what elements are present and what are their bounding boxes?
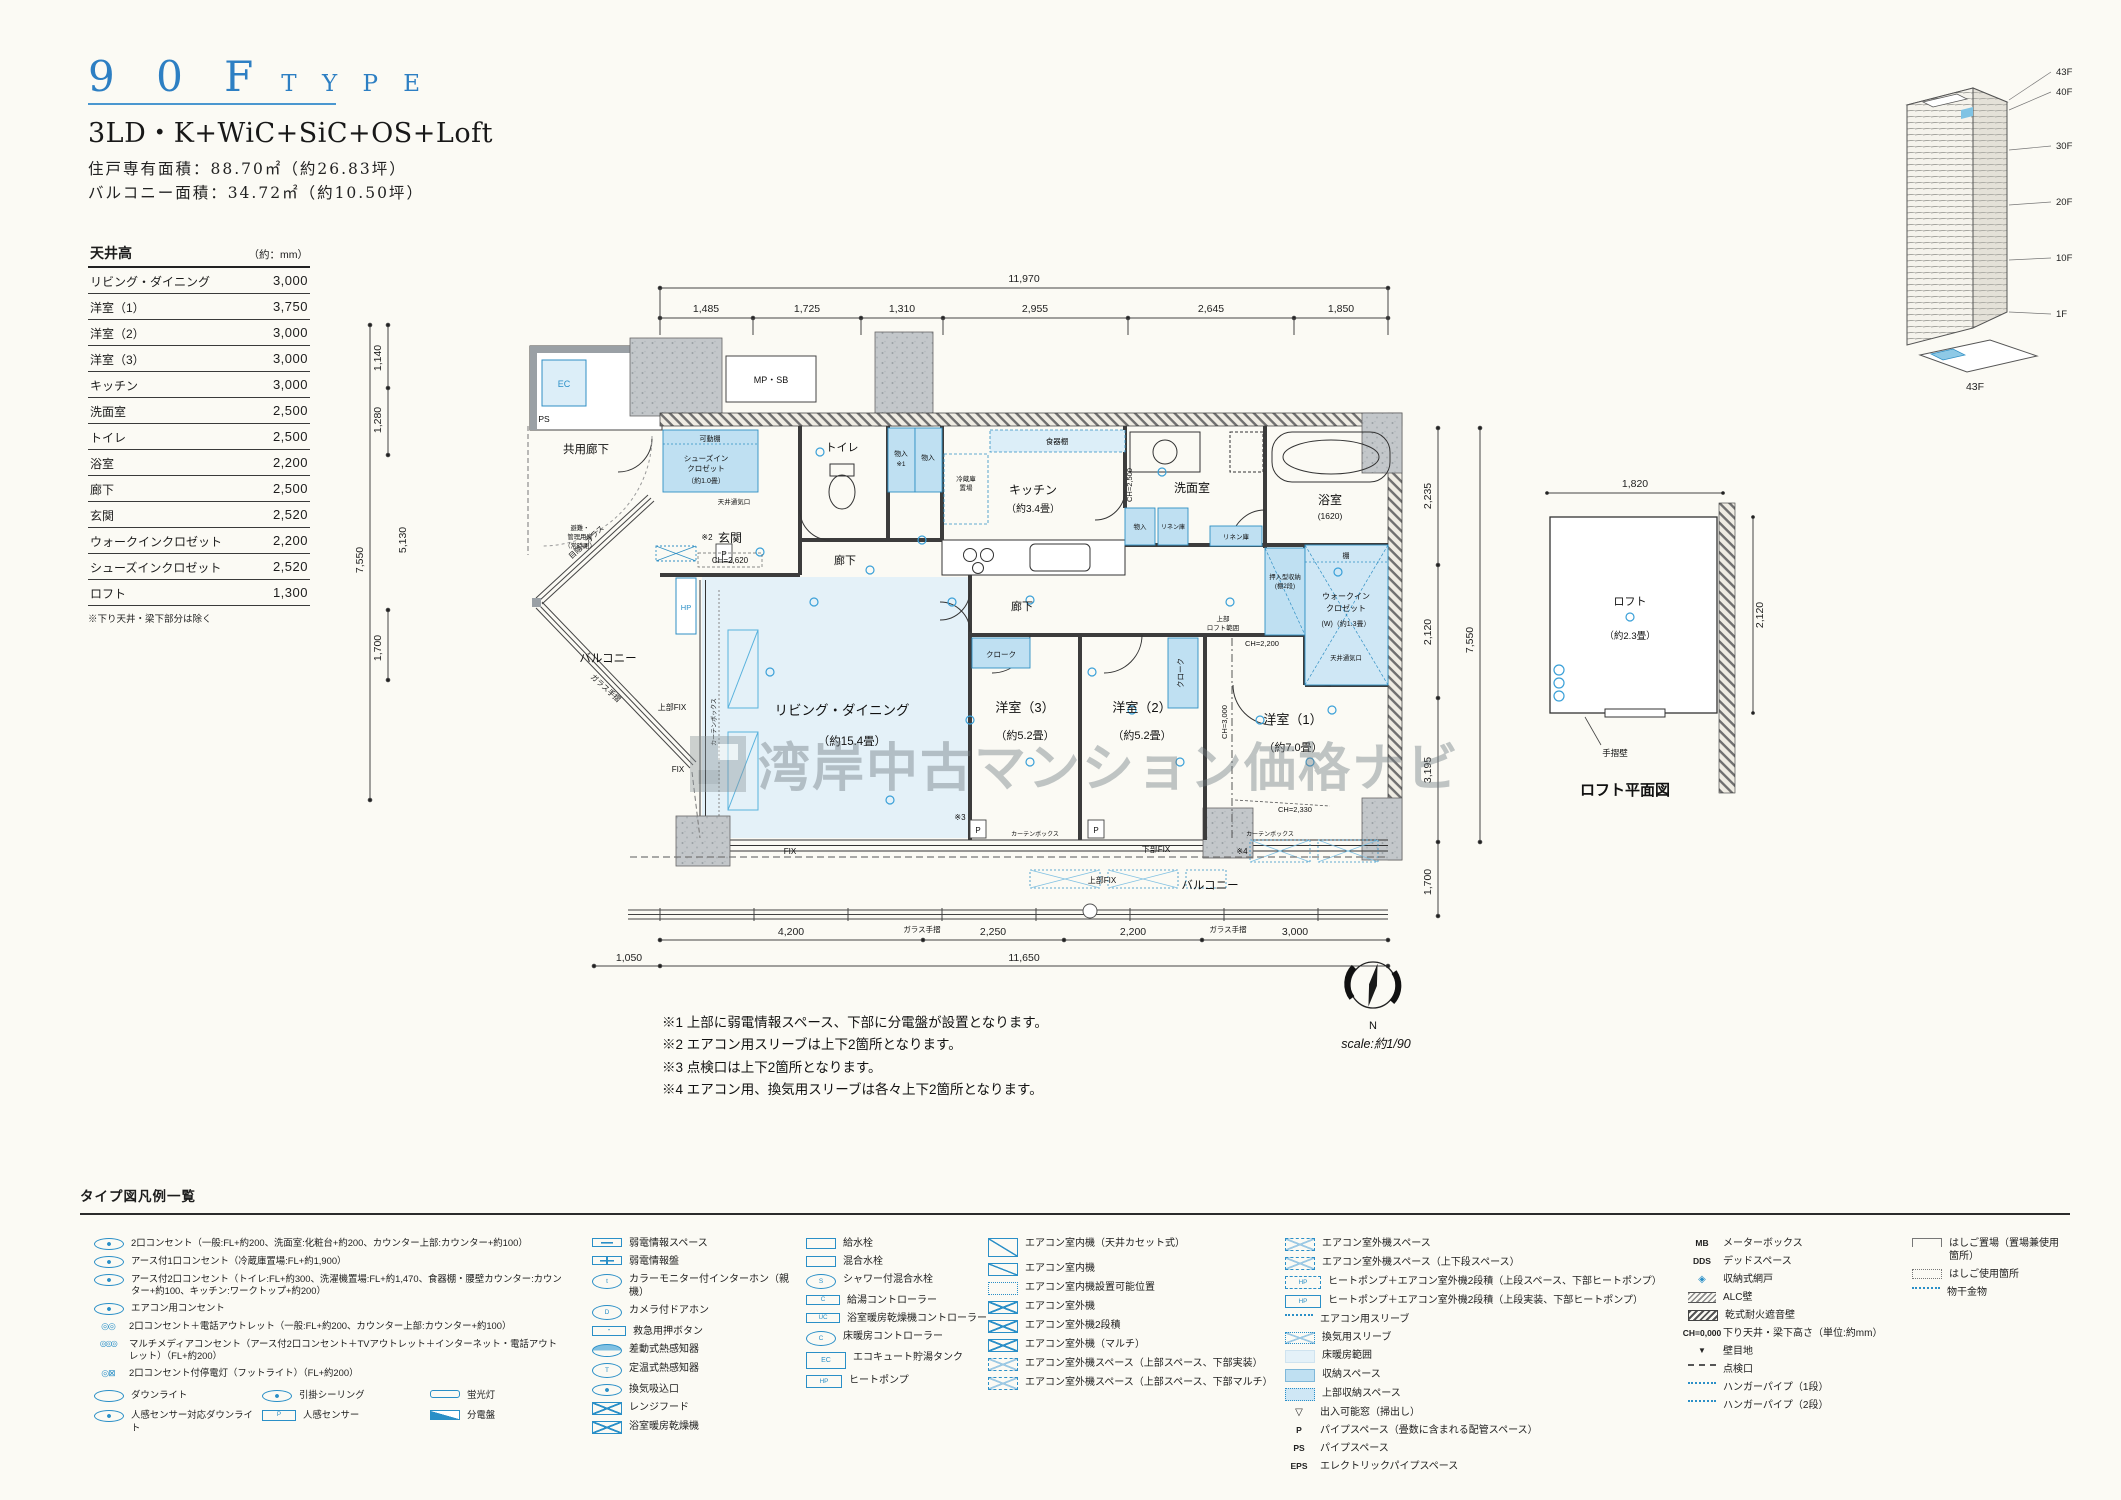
legend-icon: EC — [806, 1352, 846, 1369]
room-height: 3,000 — [273, 325, 308, 342]
label-balcony-bottom: バルコニー — [1181, 879, 1238, 892]
ceiling-row: キッチン 3,000 — [88, 372, 310, 398]
legend-item: 収納スペース — [1285, 1368, 1675, 1382]
building-tower: 43F 40F 30F 20F 10F 1F 43F — [1875, 50, 2121, 395]
label-wic2: クロゼット — [1326, 603, 1366, 613]
label-ps: PS — [538, 414, 550, 424]
label-entrance: 玄関 — [718, 530, 742, 545]
label-ceiling-vent2: 天井通気口 — [1330, 653, 1361, 662]
legend-item: エアコン室外機スペース（上部スペース、下部実装） — [988, 1357, 1283, 1371]
legend-label: エアコン室外機スペース（上部スペース、下部実装） — [1025, 1357, 1263, 1370]
dim-label: 7,550 — [1464, 627, 1476, 653]
legend-icon — [988, 1377, 1018, 1390]
room-height: 2,520 — [273, 559, 308, 576]
legend-label: 混合水栓 — [843, 1255, 883, 1268]
label-linen: リネン庫 — [1161, 523, 1185, 531]
legend-label: はしご置場（置場兼使用箇所） — [1949, 1237, 2062, 1263]
room-height: 2,200 — [273, 455, 308, 472]
ceiling-row: ウォークインクロゼット 2,200 — [88, 528, 310, 554]
page-title-type: T Y P E — [281, 71, 429, 97]
legend-label: 収納式網戸 — [1723, 1273, 1773, 1286]
legend-item: D カメラ付ドアホン — [592, 1304, 802, 1320]
legend-label: 下り天井・梁下高さ（単位:約mm） — [1723, 1327, 1882, 1340]
legend-label: 2口コンセント＋電話アウトレット（一般:FL+約200、カウンター上部:カウンタ… — [129, 1320, 511, 1332]
legend-item: エアコン室内機設置可能位置 — [988, 1281, 1283, 1295]
label-balcony-left: バルコニー — [579, 652, 636, 665]
header-block: 9 0 FT Y P E 3LD・K+WiC+SiC+OS+Loft 住戸専有面… — [88, 52, 493, 203]
legend-icon — [262, 1390, 292, 1402]
room-name: 洋室（3） — [90, 351, 145, 368]
ceiling-row: 浴室 2,200 — [88, 450, 310, 476]
legend-label: エアコン用コンセント — [131, 1302, 225, 1314]
label-sic: シューズイン — [684, 453, 729, 463]
ceiling-row: 洗面室 2,500 — [88, 398, 310, 424]
legend-item: HP ヒートポンプ＋エアコン室外機2段積（上段実装、下部ヒートポンプ） — [1285, 1294, 1675, 1308]
legend-icon: ◈ — [1688, 1274, 1716, 1285]
legend-icon — [1285, 1350, 1315, 1363]
legend-item: エアコン室内機 — [988, 1262, 1283, 1276]
legend-icon — [988, 1339, 1018, 1352]
label-storage: 物入 — [894, 449, 908, 458]
label-note4: ※4 — [1236, 847, 1248, 856]
room-name: トイレ — [90, 429, 126, 446]
legend-item: エアコン室外機（マルチ） — [988, 1338, 1283, 1352]
legend-label: デッドスペース — [1723, 1255, 1792, 1268]
legend-item: ALC壁 — [1688, 1291, 1903, 1304]
legend-label: レンジフード — [629, 1401, 689, 1414]
label-p: P — [721, 550, 726, 559]
loft-wall-hatch — [1719, 503, 1735, 793]
legend-item: 人感センサー対応ダウンライト — [94, 1409, 262, 1433]
label-fix: FIX — [672, 765, 685, 774]
dim-label: 11,650 — [1008, 952, 1039, 964]
legend-label: 蛍光灯 — [467, 1389, 495, 1401]
plan-note-line: ※3 点検口は上下2箇所となります。 — [662, 1057, 1048, 1079]
legend-column-6: MB メーターボックス DDS デッドスペース ◈ 収納式網戸 ALC壁 — [1688, 1237, 1903, 1417]
legend-item: C 給湯コントローラー — [806, 1294, 996, 1307]
legend-icon — [806, 1238, 836, 1249]
legend-label: パイプスペース（畳数に含まれる配管スペース） — [1320, 1424, 1538, 1437]
legend-icon: D — [592, 1305, 622, 1320]
legend-item: 弱電情報盤 — [592, 1255, 802, 1268]
legend-item: エアコン室外機2段積 — [988, 1319, 1283, 1333]
legend-column-5: エアコン室外機スペース エアコン室外機スペース（上下段スペース） HP ヒートポ… — [1285, 1237, 1675, 1478]
floorplan-page: 9 0 FT Y P E 3LD・K+WiC+SiC+OS+Loft 住戸専有面… — [0, 0, 2121, 1500]
loft-handrail — [1605, 709, 1665, 717]
label-ch2330: CH=2,330 — [1278, 805, 1312, 814]
legend-item: 混合水栓 — [806, 1255, 996, 1268]
plan-notes: ※1 上部に弱電情報スペース、下部に分電盤が設置となります。※2 エアコン用スリ… — [662, 1012, 1048, 1101]
legend-item: ▽ 出入可能窓（掃出し） — [1285, 1406, 1675, 1419]
legend-item: CH=0,000 下り天井・梁下高さ（単位:約mm） — [1688, 1327, 1903, 1340]
legend-label: 換気用スリーブ — [1322, 1331, 1391, 1344]
legend-label: 定温式熱感知器 — [629, 1362, 699, 1375]
label-fix-upper2: 上部FIX — [1088, 875, 1117, 885]
legend-label: エアコン室外機スペース — [1322, 1237, 1431, 1250]
ceiling-rows: リビング・ダイニング 3,000 洋室（1） 3,750 洋室（2） 3,000… — [88, 268, 310, 606]
legend-icon — [94, 1410, 124, 1422]
legend-label: 弱電情報盤 — [629, 1255, 679, 1268]
legend-icon: ・ — [592, 1326, 626, 1336]
legend-label: 浴室暖房乾燥機コントローラー — [847, 1312, 987, 1325]
legend-item: C 床暖房コントローラー — [806, 1330, 996, 1346]
legend-label: 人感センサー対応ダウンライト — [131, 1409, 262, 1433]
label-ec: EC — [558, 379, 571, 389]
legend-icon — [592, 1238, 622, 1247]
legend-icon — [592, 1256, 622, 1265]
legend-icon — [988, 1301, 1018, 1314]
dim-label: 2,120 — [1422, 619, 1434, 645]
legend-label: マルチメディアコンセント（アース付2口コンセント＋TVアウトレット＋インターネッ… — [129, 1338, 564, 1362]
legend-icon: S — [806, 1274, 836, 1289]
dim-label: 2,250 — [980, 926, 1006, 938]
label-note3: ※3 — [954, 813, 966, 822]
label-bath-size: (1620) — [1318, 511, 1343, 521]
legend-item: 給水栓 — [806, 1237, 996, 1250]
tower-floor-label: 30F — [2056, 141, 2073, 152]
label-mpsb: MP・SB — [754, 375, 789, 385]
compass: N scale:約1/90 — [1341, 962, 1411, 1051]
label-note2: ※2 — [701, 533, 713, 542]
legend-label: エアコン室外機スペース（上下段スペース） — [1322, 1256, 1520, 1269]
room-name: リビング・ダイニング — [90, 273, 210, 290]
legend-label: 出入可能窓（掃出し） — [1320, 1406, 1420, 1419]
legend-item: 引掛シーリング — [262, 1389, 430, 1402]
legend-icon — [1285, 1332, 1315, 1344]
balcony-area: バルコニー面積：34.72㎡（約10.50坪） — [88, 181, 493, 203]
dim-label: 1,050 — [616, 952, 642, 964]
legend-item: ハンガーパイプ（2段） — [1688, 1399, 1903, 1412]
room-name: 洋室（1） — [90, 299, 145, 316]
legend-item: エアコン室外機スペース — [1285, 1237, 1675, 1251]
ceiling-row: リビング・ダイニング 3,000 — [88, 268, 310, 294]
label-bedroom1-size: （約7.0畳） — [1263, 740, 1322, 754]
label-evac: 避難・ — [571, 523, 590, 532]
legend-item: アース付1口コンセント（冷蔵庫置場:FL+約1,900） — [94, 1255, 564, 1268]
legend-item: 蛍光灯 — [430, 1389, 558, 1402]
loft-label: ロフト — [1614, 596, 1647, 608]
legend-column-7: はしご置場（置場兼使用箇所） はしご使用箇所 物干金物 — [1912, 1237, 2062, 1304]
legend-label: パイプスペース — [1320, 1442, 1389, 1455]
legend-item: 床暖房範囲 — [1285, 1349, 1675, 1363]
legend-icon — [1688, 1292, 1716, 1303]
legend-label: アース付1口コンセント（冷蔵庫置場:FL+約1,900） — [131, 1255, 346, 1267]
legend-item: S シャワー付混合水栓 — [806, 1273, 996, 1289]
label-cupboard: 食器棚 — [1046, 436, 1069, 446]
legend-label: 換気吸込口 — [629, 1383, 679, 1396]
room-name: ウォークインクロゼット — [90, 533, 222, 550]
legend-title: タイプ図凡例一覧 — [80, 1185, 2070, 1205]
legend-label: 物干金物 — [1947, 1286, 1987, 1299]
legend-icon — [1285, 1369, 1315, 1382]
label-bedroom1: 洋室（1） — [1263, 712, 1322, 727]
dim-label: 1,140 — [372, 345, 384, 371]
legend-column-1: 2口コンセント（一般:FL+約200、洗面室:化粧台+約200、カウンター上部:… — [94, 1237, 564, 1379]
loft-plan: 1,820 2,120 ロフト （約2.3畳） 手摺壁 ロフト平面図 — [1505, 465, 1785, 810]
plan-note-line: ※2 エアコン用スリーブは上下2箇所となります。 — [662, 1034, 1048, 1056]
legend-icon — [1688, 1400, 1716, 1402]
dim-label: 1,700 — [1422, 869, 1434, 895]
room-height: 2,200 — [273, 533, 308, 550]
label-bedroom2-size: （約5.2畳） — [1112, 728, 1171, 742]
legend-item: ◈ 収納式網戸 — [1688, 1273, 1903, 1286]
label-shelf: 可動棚 — [700, 434, 721, 443]
legend-icon: HP — [1285, 1295, 1321, 1308]
legend-item: エアコン用スリーブ — [1285, 1313, 1675, 1326]
label-fix2: FIX — [784, 847, 797, 856]
legend-rule — [80, 1213, 2070, 1215]
tower-floor-label: 20F — [2056, 197, 2073, 208]
ceiling-table-unit: （約：mm） — [249, 247, 309, 262]
legend-item: エアコン用コンセント — [94, 1302, 564, 1315]
label-living-dining: リビング・ダイニング — [775, 703, 910, 718]
tower-floor-label: 10F — [2056, 253, 2073, 264]
compass-n: N — [1369, 1020, 1377, 1032]
legend-icon: HP — [1285, 1276, 1321, 1289]
legend-label: ヒートポンプ＋エアコン室外機2段積（上段スペース、下部ヒートポンプ） — [1328, 1275, 1662, 1288]
label-cloak: クローク — [986, 650, 1016, 659]
legend-icon: DDS — [1688, 1256, 1716, 1266]
legend-item: 弱電情報スペース — [592, 1237, 802, 1250]
ceiling-row: ロフト 1,300 — [88, 580, 310, 606]
legend-item: MB メーターボックス — [1688, 1237, 1903, 1250]
legend-item: エアコン室外機スペース（上下段スペース） — [1285, 1256, 1675, 1270]
legend-item: 分電盤 — [430, 1409, 558, 1433]
label-p2: P — [975, 826, 980, 835]
legend-label: 浴室暖房乾燥機 — [629, 1420, 699, 1433]
label-common-corridor: 共用廊下 — [563, 442, 609, 456]
room-name: 浴室 — [90, 455, 114, 472]
label-bedroom2: 洋室（2） — [1112, 700, 1171, 715]
legend-icon — [1688, 1382, 1716, 1384]
dim-label: 4,200 — [778, 926, 804, 938]
label-hall: 廊下 — [834, 553, 856, 567]
dim-label: 2,955 — [1022, 303, 1048, 315]
legend-label: エコキュート貯湯タンク — [853, 1351, 963, 1364]
label-wic-size: (W)（約1.3畳） — [1322, 619, 1371, 628]
room-height: 3,000 — [273, 351, 308, 368]
dim-label: 2,235 — [1422, 483, 1434, 509]
loft-caption: ロフト平面図 — [1580, 782, 1670, 799]
legend-item: はしご使用箇所 — [1912, 1268, 2062, 1281]
legend-item: 点検口 — [1688, 1363, 1903, 1376]
room-height: 2,500 — [273, 429, 308, 446]
floor-plan: 11,970 1,485 1,725 1,310 2,955 2,645 1,8… — [330, 240, 1500, 1090]
legend-icon: C — [806, 1331, 836, 1346]
legend-label: エレクトリックパイプスペース — [1320, 1460, 1458, 1473]
room-name: ロフト — [90, 585, 126, 602]
legend-label: メーターボックス — [1723, 1237, 1803, 1250]
legend-item: DDS デッドスペース — [1688, 1255, 1903, 1268]
label-ch3000: CH=3,000 — [1220, 705, 1229, 739]
legend-label: シャワー付混合水栓 — [843, 1273, 933, 1286]
legend-item: はしご置場（置場兼使用箇所） — [1912, 1237, 2062, 1263]
legend-icon — [1285, 1388, 1315, 1401]
label-bath: 浴室 — [1318, 492, 1342, 507]
legend-item: T 定温式熱感知器 — [592, 1362, 802, 1378]
legend-label: 2口コンセント付停電灯（フットライト）（FL+約200） — [129, 1367, 358, 1379]
legend-label: エアコン室外機スペース（上部スペース、下部マルチ） — [1025, 1376, 1273, 1389]
legend-icon — [1285, 1257, 1315, 1270]
legend-icon — [94, 1303, 124, 1315]
legend-item: UC 浴室暖房乾燥機コントローラー — [806, 1312, 996, 1325]
legend-label: 乾式耐火遮音壁 — [1725, 1309, 1795, 1322]
legend-label: カメラ付ドアホン — [629, 1304, 709, 1317]
legend-item: ハンガーパイプ（1段） — [1688, 1381, 1903, 1394]
dim-label: 1,700 — [372, 635, 384, 661]
legend-label: ハンガーパイプ（2段） — [1723, 1399, 1828, 1412]
room-name: 洗面室 — [90, 403, 126, 420]
legend-item: 上部収納スペース — [1285, 1387, 1675, 1401]
ceiling-row: 洋室（3） 3,000 — [88, 346, 310, 372]
dim-label: 1,310 — [889, 303, 915, 315]
legend-item: 物干金物 — [1912, 1286, 2062, 1299]
room-name: 玄関 — [90, 507, 114, 524]
legend-icon — [1912, 1269, 1942, 1279]
room-height: 2,500 — [273, 481, 308, 498]
legend-item: ▼ 壁目地 — [1688, 1345, 1903, 1358]
tower-floor-label: 43F — [2056, 67, 2073, 78]
legend-icon — [430, 1410, 460, 1420]
room-name: 洋室（2） — [90, 325, 145, 342]
dim-label: 7,550 — [354, 547, 366, 573]
label-fridge: 冷蔵庫 — [956, 474, 976, 483]
legend-icon — [988, 1358, 1018, 1371]
label-loft-upper: 上部 — [1217, 614, 1231, 623]
legend-item: アース付2口コンセント（トイレ:FL+約300、洗濯機置場:FL+約1,470、… — [94, 1273, 564, 1297]
label-ch2200: CH=2,200 — [1245, 639, 1279, 648]
legend-label: 床暖房コントローラー — [843, 1330, 943, 1343]
label-entrance-ch: CH=2,620 — [712, 556, 749, 565]
legend-label: 上部収納スペース — [1322, 1387, 1401, 1400]
legend-item: 換気吸込口 — [592, 1383, 802, 1396]
legend-label: 2口コンセント（一般:FL+約200、洗面室:化粧台+約200、カウンター上部:… — [131, 1237, 528, 1249]
label-curtain-box: カーテンボックス — [710, 698, 718, 746]
dim-label: 3,195 — [1422, 757, 1434, 783]
legend-label: エアコン用スリーブ — [1320, 1313, 1409, 1326]
legend-item: 乾式耐火遮音壁 — [1688, 1309, 1903, 1322]
legend-item: エアコン室内機（天井カセット式） — [988, 1237, 1283, 1257]
room-height: 1,300 — [273, 585, 308, 602]
legend-icon: EPS — [1285, 1461, 1313, 1471]
ceiling-table-title: 天井高 — [90, 243, 132, 263]
legend-icon — [1688, 1310, 1718, 1321]
legend-item: HP ヒートポンプ — [806, 1374, 996, 1388]
legend-item: エアコン室外機 — [988, 1300, 1283, 1314]
label-living-dining-size: （約15.4畳） — [818, 734, 886, 748]
legend-icon — [430, 1390, 460, 1398]
legend-label: 救急用押ボタン — [633, 1325, 703, 1338]
ceiling-row: シューズインクロゼット 2,520 — [88, 554, 310, 580]
legend-icon: CH=0,000 — [1688, 1328, 1716, 1338]
legend-icon — [988, 1320, 1018, 1333]
dim-label: 1,280 — [372, 407, 384, 433]
label-futon-closet: 押入型収納 — [1269, 572, 1300, 581]
room-height: 2,500 — [273, 403, 308, 420]
label-curtain-box2: カーテンボックス — [1011, 830, 1059, 838]
room-name: シューズインクロゼット — [90, 559, 221, 576]
legend-icon: T — [592, 1363, 622, 1378]
legend-label: 人感センサー — [303, 1409, 359, 1421]
legend-label: 給湯コントローラー — [847, 1294, 937, 1307]
ceiling-row: 洋室（2） 3,000 — [88, 320, 310, 346]
floor-plate-caption: 43F — [1966, 381, 1984, 393]
legend-item: 2口コンセント付停電灯（フットライト）（FL+約200） — [94, 1367, 564, 1379]
legend-icon — [94, 1274, 124, 1286]
legend-label: ヒートポンプ＋エアコン室外機2段積（上段実装、下部ヒートポンプ） — [1328, 1294, 1643, 1307]
loft-handrail-label: 手摺壁 — [1602, 748, 1628, 758]
label-kitchen-size: （約3.4畳） — [1006, 502, 1060, 515]
legend-column-3: 給水栓 混合水栓 S シャワー付混合水栓 C 給湯コントローラー — [806, 1237, 996, 1393]
ceiling-table-header: 天井高 （約：mm） — [88, 240, 310, 268]
label-linen2: リネン庫 — [1223, 532, 1250, 541]
label-glass-rail2: ガラス手摺 — [903, 924, 940, 934]
legend-icon — [988, 1263, 1018, 1276]
loft-dim-height: 2,120 — [1754, 602, 1766, 628]
plan-note-line: ※1 上部に弱電情報スペース、下部に分電盤が設置となります。 — [662, 1012, 1048, 1034]
legend-icon — [94, 1368, 122, 1379]
legend-label: 床暖房範囲 — [1322, 1349, 1372, 1362]
legend-item: 差動式熱感知器 — [592, 1343, 802, 1357]
legend-label: 差動式熱感知器 — [629, 1343, 699, 1356]
legend-icon — [1688, 1364, 1716, 1366]
label-hp: HP — [681, 603, 691, 612]
legend-icon: MB — [1688, 1238, 1716, 1248]
unit-area: 住戸専有面積：88.70㎡（約26.83坪） — [88, 157, 493, 179]
legend-item: P 人感センサー — [262, 1409, 430, 1433]
label-futon-closet2: (棚2段) — [1275, 581, 1295, 590]
legend-icon: PS — [1285, 1443, 1313, 1453]
label-storage-note: ※1 — [896, 461, 905, 468]
legend-item: ダウンライト — [94, 1389, 262, 1402]
label-fridge2: 置場 — [960, 483, 974, 492]
room-height: 3,000 — [273, 273, 308, 290]
legend-icon: HP — [806, 1375, 842, 1388]
label-fix-lower: 下部FIX — [1142, 844, 1171, 854]
label-glass-rail3: ガラス手摺 — [1209, 924, 1246, 934]
legend-icon — [1285, 1238, 1315, 1251]
legend-item: t カラーモニター付インターホン（親機） — [592, 1273, 802, 1299]
legend-icon — [1912, 1287, 1940, 1289]
legend-item: EC エコキュート貯湯タンク — [806, 1351, 996, 1369]
plan-note-line: ※4 エアコン用、換気用スリーブは各々上下2箇所となります。 — [662, 1079, 1048, 1101]
room-height: 3,000 — [273, 377, 308, 394]
legend-icon — [592, 1402, 622, 1415]
legend-icon — [1285, 1314, 1313, 1316]
legend-label: エアコン室外機（マルチ） — [1025, 1338, 1145, 1351]
legend-icon — [94, 1256, 124, 1268]
legend-icon — [592, 1344, 622, 1357]
legend-icon — [988, 1238, 1018, 1257]
label-kitchen: キッチン — [1009, 483, 1057, 497]
label-wic: ウォークイン — [1322, 592, 1370, 601]
legend-item: PS パイプスペース — [1285, 1442, 1675, 1455]
label-bedroom3-size: （約5.2畳） — [995, 728, 1054, 742]
label-curtain-box3: カーテンボックス — [1246, 830, 1294, 838]
label-sic-size: （約1.0畳） — [687, 476, 725, 485]
legend-item: HP ヒートポンプ＋エアコン室外機2段積（上段スペース、下部ヒートポンプ） — [1285, 1275, 1675, 1289]
ceiling-row: 玄関 2,520 — [88, 502, 310, 528]
legend-label: エアコン室内機 — [1025, 1262, 1095, 1275]
legend-label: ハンガーパイプ（1段） — [1723, 1381, 1828, 1394]
legend-icon — [94, 1238, 124, 1250]
loft-size: （約2.3畳） — [1604, 630, 1655, 642]
legend-icon: C — [806, 1295, 840, 1305]
legend-label: ALC壁 — [1723, 1291, 1752, 1304]
legend-column-2: 弱電情報スペース 弱電情報盤 t カラーモニター付インターホン（親機） D カメ… — [592, 1237, 802, 1439]
label-kitchen-ch: CH=2,500 — [1125, 468, 1134, 502]
legend-icon — [94, 1321, 122, 1332]
